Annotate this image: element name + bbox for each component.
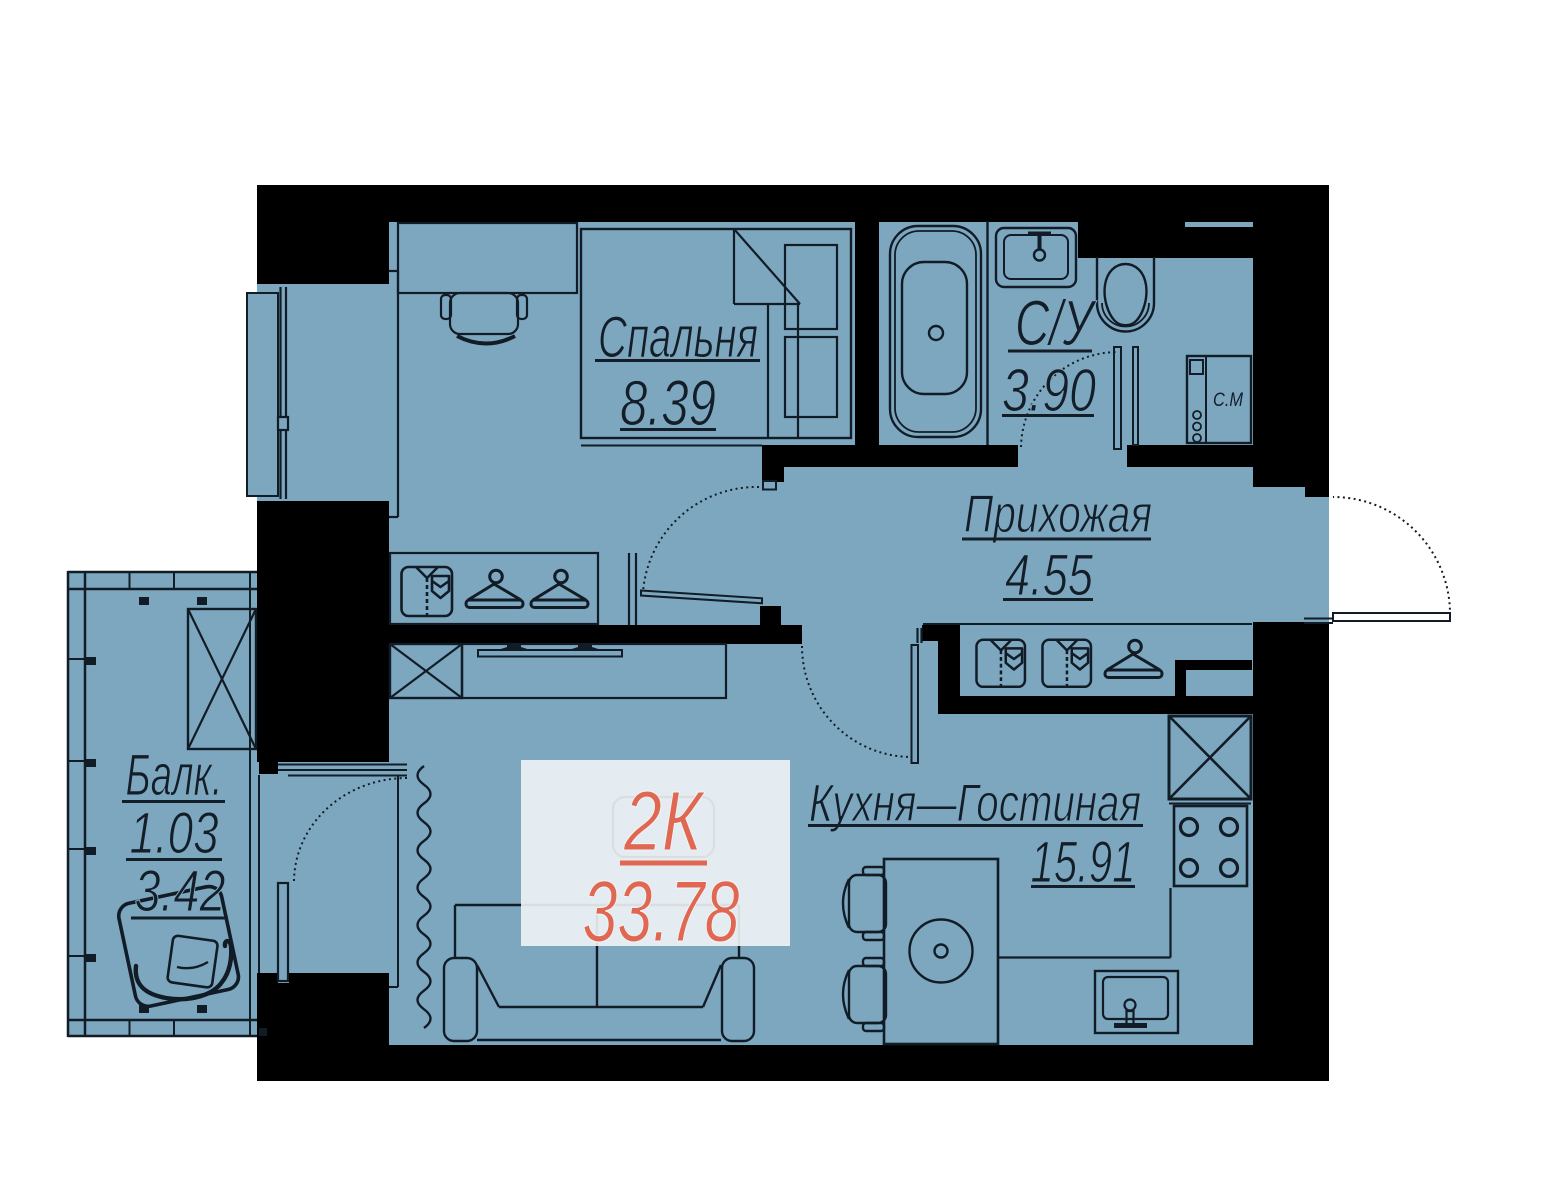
svg-text:1.03: 1.03 [130,801,219,866]
svg-text:Балк.: Балк. [126,743,223,808]
svg-text:С/У: С/У [1015,287,1098,359]
svg-text:3.42: 3.42 [135,859,226,924]
svg-text:С.М: С.М [1213,390,1243,411]
svg-text:3.90: 3.90 [1002,357,1096,424]
svg-text:33.78: 33.78 [583,864,740,960]
svg-text:2К: 2К [623,774,705,868]
svg-text:Прихожая: Прихожая [964,485,1152,544]
